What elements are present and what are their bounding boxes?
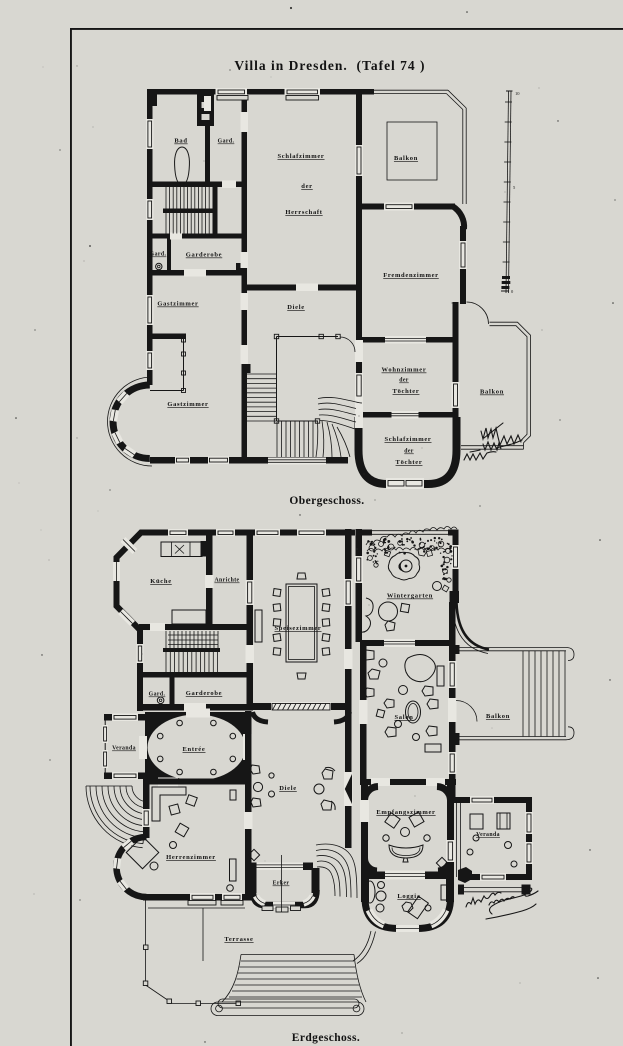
svg-text:Terrasse: Terrasse [224,936,253,943]
svg-text:Gastzimmer: Gastzimmer [167,401,208,408]
svg-text:Wohnzimmer: Wohnzimmer [382,367,427,374]
svg-text:der: der [399,378,409,384]
svg-text:Schlafzimmer: Schlafzimmer [384,436,431,443]
svg-text:Wintergarten: Wintergarten [387,593,433,600]
svg-text:Gastzimmer: Gastzimmer [157,301,198,308]
svg-text:Diele: Diele [279,785,297,792]
svg-text:Diele: Diele [287,304,305,311]
svg-text:Fremdenzimmer: Fremdenzimmer [383,272,439,279]
svg-text:Töchter: Töchter [393,388,420,395]
svg-text:Bad: Bad [174,138,187,145]
svg-text:Villa in Dresden. (Tafel 74 ): Villa in Dresden. (Tafel 74 ) [234,58,425,73]
svg-text:Empfangszimmer: Empfangszimmer [376,809,435,816]
svg-text:Loggia: Loggia [397,893,420,900]
svg-text:Küche: Küche [150,578,172,585]
svg-text:Obergeschoss.: Obergeschoss. [289,495,364,507]
svg-text:Anrichte: Anrichte [214,578,239,584]
svg-text:Balkon: Balkon [480,389,504,396]
svg-text:Balkon: Balkon [394,155,418,162]
svg-text:10: 10 [515,91,520,96]
svg-text:Erker: Erker [273,881,290,887]
svg-text:Garderobe: Garderobe [186,690,223,697]
svg-text:Balkon: Balkon [486,713,510,720]
svg-text:Gard.: Gard. [218,139,235,145]
svg-text:der: der [404,449,414,455]
svg-text:Salon: Salon [394,714,413,721]
svg-text:Speisezimmer: Speisezimmer [274,625,321,632]
svg-text:Veranda: Veranda [476,832,500,838]
svg-text:Entrée: Entrée [183,746,206,753]
svg-text:Gard.: Gard. [150,252,167,258]
svg-text:Veranda: Veranda [112,746,136,752]
svg-text:Töchter: Töchter [396,459,423,466]
svg-text:Schlafzimmer: Schlafzimmer [277,153,324,160]
svg-text:Erdgeschoss.: Erdgeschoss. [292,1032,360,1044]
svg-text:Herrschaft: Herrschaft [285,209,322,216]
svg-text:Gard.: Gard. [149,692,166,698]
svg-text:der: der [301,183,313,190]
svg-text:Herrenzimmer: Herrenzimmer [166,854,216,861]
svg-text:Garderobe: Garderobe [186,252,223,259]
